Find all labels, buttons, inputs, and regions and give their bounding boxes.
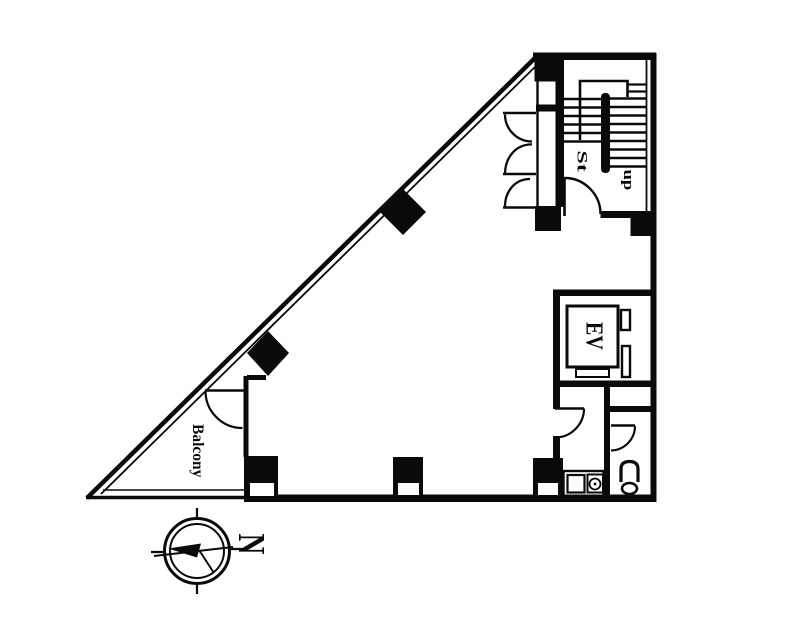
svg-text:Balcony: Balcony — [189, 424, 206, 478]
svg-text:EV: EV — [581, 322, 608, 350]
svg-text:St: St — [574, 151, 590, 173]
svg-text:N: N — [230, 534, 271, 555]
svg-text:up: up — [620, 170, 637, 191]
